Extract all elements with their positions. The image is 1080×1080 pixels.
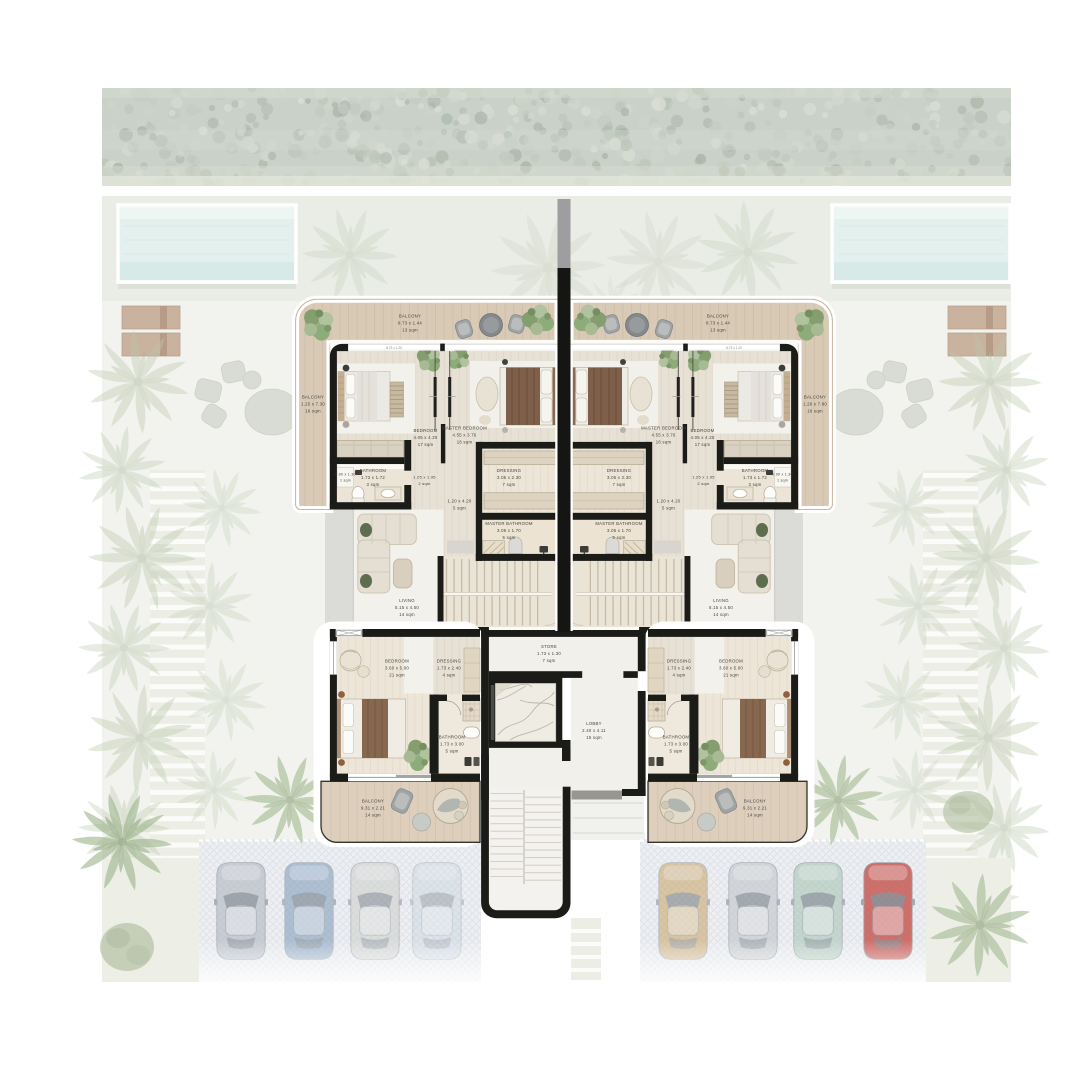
svg-text:8.73 x 1.20: 8.73 x 1.20 [726, 346, 742, 350]
svg-text:8.73 x 1.20: 8.73 x 1.20 [386, 346, 402, 350]
